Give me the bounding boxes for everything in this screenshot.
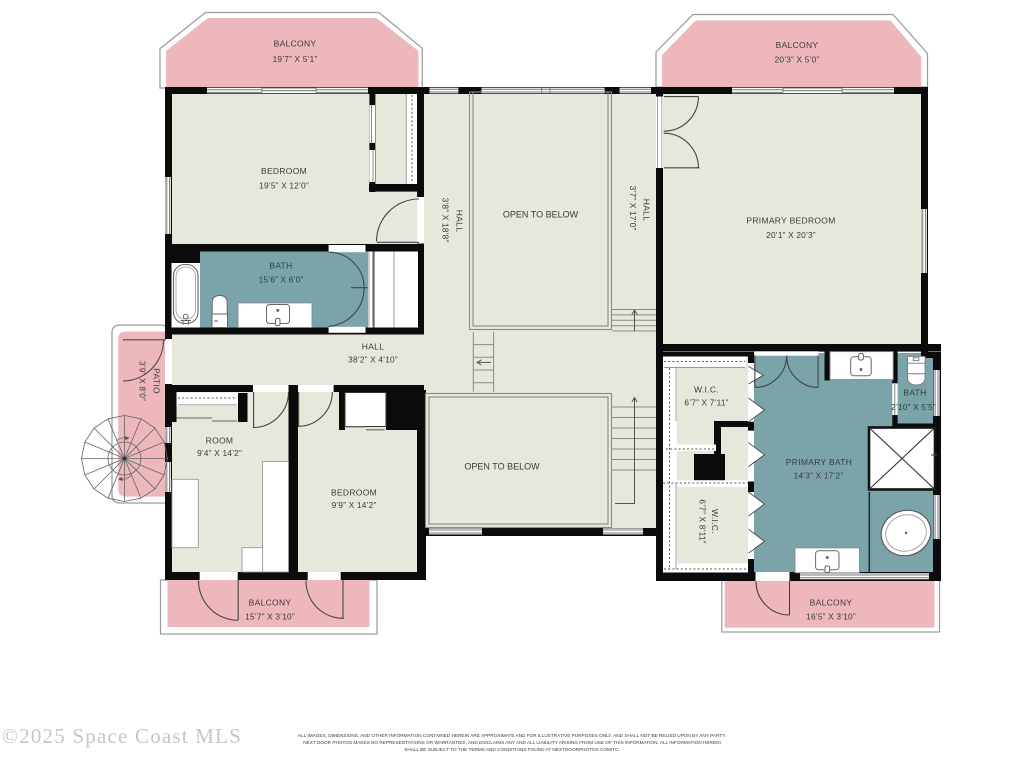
- svg-text:14’3” X 17’2”: 14’3” X 17’2”: [794, 471, 844, 481]
- svg-text:16’5” X 3’10”: 16’5” X 3’10”: [806, 612, 856, 622]
- svg-text:19’5” X 12’0”: 19’5” X 12’0”: [259, 181, 309, 191]
- svg-text:6’7” X 7’11”: 6’7” X 7’11”: [684, 398, 728, 408]
- svg-text:20’1” X 20’3”: 20’1” X 20’3”: [766, 230, 816, 240]
- svg-text:BALCONY: BALCONY: [274, 39, 317, 49]
- svg-text:BATH: BATH: [903, 388, 926, 398]
- svg-text:BALCONY: BALCONY: [776, 40, 819, 50]
- svg-text:HALL: HALL: [362, 342, 384, 352]
- svg-text:HALL: HALL: [455, 210, 465, 232]
- svg-text:W.I.C.: W.I.C.: [710, 509, 720, 534]
- svg-text:3’7” X 17’0”: 3’7” X 17’0”: [628, 186, 638, 231]
- svg-text:9’9” X 14’2”: 9’9” X 14’2”: [332, 500, 377, 510]
- svg-text:19’7” X 5’1”: 19’7” X 5’1”: [273, 54, 318, 64]
- svg-text:6’7” X 8’11”: 6’7” X 8’11”: [698, 499, 708, 543]
- svg-text:OPEN TO BELOW: OPEN TO BELOW: [503, 210, 579, 220]
- svg-text:9’4” X 14’2”: 9’4” X 14’2”: [197, 448, 242, 458]
- svg-text:BATH: BATH: [269, 261, 292, 271]
- svg-text:PRIMARY BATH: PRIMARY BATH: [786, 457, 852, 467]
- svg-text:20’3” X 5’0”: 20’3” X 5’0”: [775, 55, 820, 65]
- svg-text:HALL: HALL: [642, 199, 652, 221]
- svg-text:©2025 Space Coast MLS: ©2025 Space Coast MLS: [2, 724, 242, 748]
- svg-text:ROOM: ROOM: [206, 436, 234, 446]
- svg-text:15’7” X 3’10”: 15’7” X 3’10”: [245, 612, 295, 622]
- svg-text:38’2” X 4’10”: 38’2” X 4’10”: [348, 355, 398, 365]
- svg-text:NEXT DOOR PHOTOS MAKES NO REPR: NEXT DOOR PHOTOS MAKES NO REPRESENTATION…: [303, 740, 721, 745]
- svg-text:OPEN TO BELOW: OPEN TO BELOW: [464, 462, 540, 472]
- svg-text:PRIMARY BEDROOM: PRIMARY BEDROOM: [746, 216, 835, 226]
- svg-text:BEDROOM: BEDROOM: [261, 166, 307, 176]
- svg-text:BALCONY: BALCONY: [810, 598, 853, 608]
- svg-text:3’9” X 8’0”: 3’9” X 8’0”: [138, 361, 148, 401]
- svg-text:2’10” X 5’5”: 2’10” X 5’5”: [891, 402, 936, 412]
- svg-text:W.I.C.: W.I.C.: [694, 385, 719, 395]
- svg-text:BEDROOM: BEDROOM: [331, 488, 377, 498]
- svg-text:SHALL BE SUBJECT TO THE TERMS: SHALL BE SUBJECT TO THE TERMS AND CONDIT…: [404, 747, 620, 752]
- svg-text:3’8” X 18’8”: 3’8” X 18’8”: [441, 198, 451, 243]
- svg-text:PATIO: PATIO: [152, 368, 162, 394]
- svg-text:BALCONY: BALCONY: [249, 598, 292, 608]
- svg-text:15’6” X 6’0”: 15’6” X 6’0”: [259, 275, 304, 285]
- svg-text:ALL IMAGES, DIMENSIONS, AND OT: ALL IMAGES, DIMENSIONS, AND OTHER INFORM…: [298, 733, 726, 738]
